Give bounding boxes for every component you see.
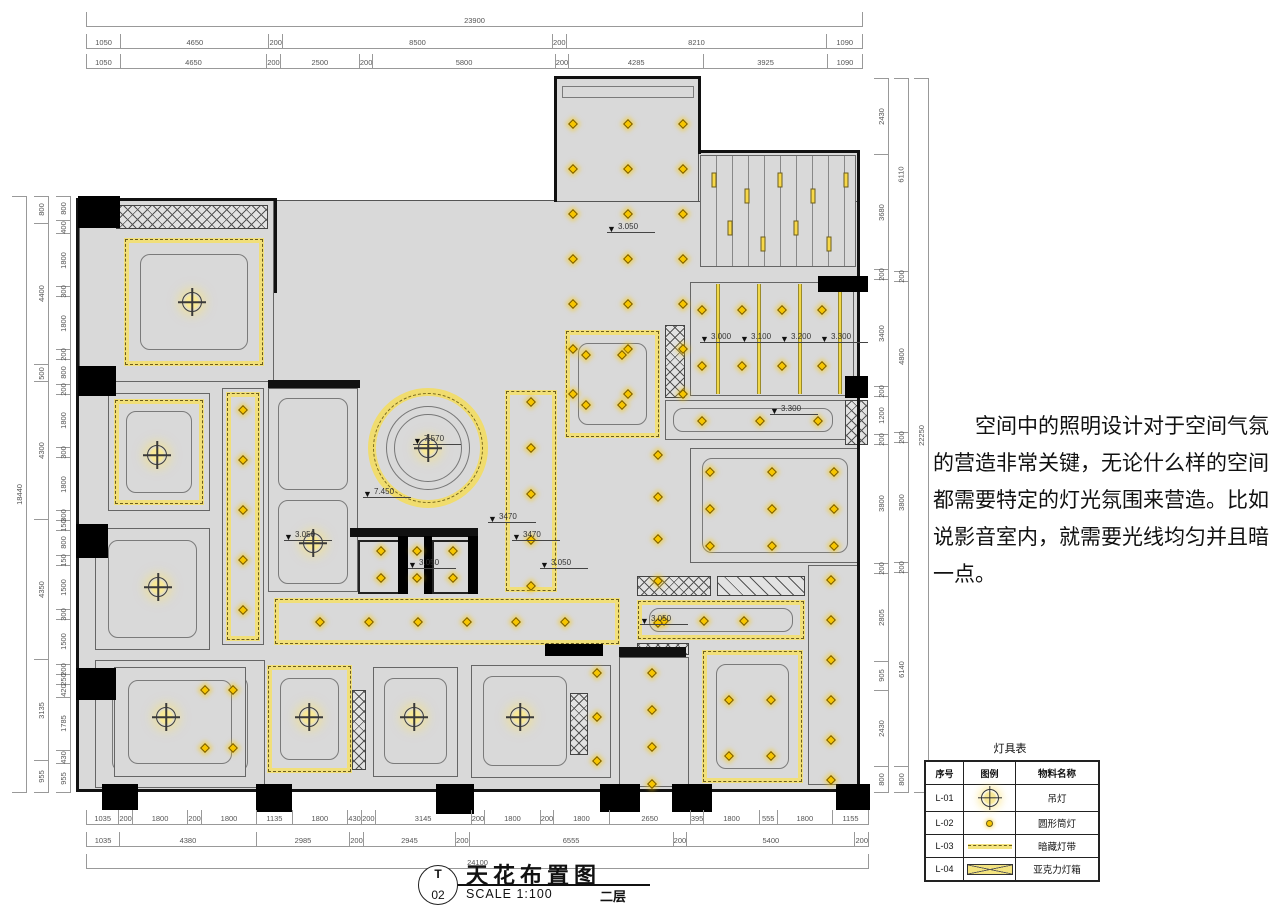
dim-segment: 4800 — [894, 282, 908, 434]
wall-segment — [268, 380, 360, 388]
dim-segment: 2650 — [610, 810, 691, 824]
dim-segment: 1035 — [87, 810, 119, 824]
column-pier — [818, 276, 868, 292]
dim-segment: 420 — [56, 685, 70, 698]
dim-label: 955 — [36, 770, 45, 783]
dim-segment: 1800 — [293, 810, 348, 824]
legend-header-symbol: 图例 — [964, 762, 1016, 784]
dim-segment: 1155 — [833, 810, 869, 824]
dim-chain-bottom-row1: 1035200180020018001135180043020031452001… — [86, 810, 869, 825]
elevation-label: 7.450 — [374, 487, 394, 496]
dim-segment: 200 — [472, 810, 486, 824]
bar-light-icon — [712, 173, 717, 188]
wall-segment — [698, 76, 701, 154]
dim-label: 6110 — [897, 167, 906, 183]
wall-segment — [556, 76, 700, 79]
dim-label: 1135 — [266, 815, 282, 823]
dim-label: 200 — [58, 349, 67, 362]
elevation-label: 3.100 — [751, 332, 771, 341]
lighting-legend: 灯具表 序号 图例 物料名称 L-01 吊灯 L-02 圆形筒灯 L-03 暗藏… — [924, 740, 1096, 882]
dim-label: 200 — [553, 39, 566, 47]
dim-label: 400 — [58, 221, 67, 234]
dim-label: 200 — [876, 269, 885, 282]
dim-label: 1785 — [59, 716, 68, 733]
legend-item-id: L-01 — [926, 785, 964, 811]
dim-label: 3135 — [37, 702, 46, 719]
dim-label: 2650 — [641, 815, 658, 823]
dim-segment: 1800 — [56, 458, 70, 511]
dim-label: 200 — [896, 431, 905, 444]
dim-label: 1800 — [796, 815, 813, 823]
dim-segment: 1800 — [778, 810, 833, 824]
dim-label: 4400 — [37, 285, 46, 302]
title-block: T 02 天花布置图 SCALE 1:100 二层 — [404, 858, 704, 902]
column-pier — [600, 784, 640, 812]
dim-segment: 2945 — [364, 832, 456, 846]
pendant-light-icon — [981, 789, 999, 807]
sheet-number: 02 — [419, 888, 457, 902]
dim-segment: 3800 — [874, 445, 888, 564]
pendant-light-icon — [147, 445, 167, 465]
dim-chain-left-total: 18440 — [12, 196, 27, 793]
dim-label: 2500 — [311, 59, 328, 67]
elevation-label: 7.570 — [424, 434, 444, 443]
dim-label: 3680 — [877, 204, 886, 221]
elevation-marker: 3.050 — [640, 614, 688, 625]
dim-label: 8210 — [688, 39, 705, 47]
dim-segment: 800 — [56, 531, 70, 555]
dim-label: 3800 — [877, 496, 886, 513]
sheet-letter: T — [419, 867, 457, 881]
dim-segment: 955 — [56, 764, 70, 793]
dim-segment: 1800 — [56, 297, 70, 350]
dim-label: 905 — [876, 670, 885, 683]
dim-label: 200 — [350, 837, 363, 845]
dim-segment: 200 — [269, 34, 283, 48]
bar-light-icon — [794, 221, 799, 236]
dim-segment: 3145 — [376, 810, 472, 824]
annotation-paragraph: 空间中的照明设计对于空间气氛的营造非常关键，无论什么样的空间都需要特定的灯光氛围… — [933, 408, 1269, 593]
dim-label: 1800 — [311, 815, 328, 823]
drawing-title: 天花布置图 — [466, 858, 601, 890]
dim-segment: 6555 — [470, 832, 674, 846]
dim-segment: 200 — [894, 433, 908, 443]
dim-segment: 3135 — [34, 660, 48, 761]
dim-label: 200 — [119, 815, 132, 823]
dim-segment: 3400 — [874, 280, 888, 386]
elevation-marker: 3470 — [488, 512, 536, 523]
dim-segment: 1200 — [874, 397, 888, 435]
dim-segment: 430 — [348, 810, 362, 824]
dim-label: 200 — [188, 815, 201, 823]
column-pier — [836, 784, 870, 810]
dim-segment: 200 — [119, 810, 133, 824]
room — [619, 657, 689, 787]
wall-segment — [76, 198, 79, 792]
dim-label: 1500 — [59, 579, 68, 596]
column-pier — [672, 784, 712, 812]
wall-segment — [619, 647, 686, 657]
dim-label: 2430 — [877, 720, 886, 737]
elevation-label: 3470 — [523, 530, 541, 539]
dim-segment: 1135 — [257, 810, 292, 824]
dim-label: 200 — [456, 837, 469, 845]
dim-segment: 200 — [855, 832, 869, 846]
elevation-label: 3.000 — [711, 332, 731, 341]
dim-label: 200 — [896, 562, 905, 575]
dim-segment: 8500 — [283, 34, 553, 48]
dim-segment: 200 — [674, 832, 688, 846]
dim-label: 1200 — [877, 407, 886, 424]
dim-label: 200 — [674, 837, 687, 845]
dim-segment: 1035 — [87, 832, 120, 846]
dim-segment: 2805 — [874, 574, 888, 662]
dim-label: 3925 — [757, 59, 774, 67]
drawing-floor: 二层 — [600, 886, 626, 905]
elevation-label: 3.300 — [831, 332, 851, 341]
dim-label: 200 — [362, 815, 375, 823]
dim-segment: 8210 — [567, 34, 828, 48]
elevation-marker: 7.570 — [413, 434, 461, 445]
dim-segment: 555 — [760, 810, 778, 824]
elevation-label: 3.050 — [618, 222, 638, 231]
dim-segment: 800 — [34, 197, 48, 224]
drawing-scale: SCALE 1:100 — [466, 887, 553, 901]
legend-title: 灯具表 — [924, 740, 1096, 756]
dim-label: 6555 — [563, 837, 580, 845]
dim-segment: 1800 — [56, 234, 70, 287]
dim-label: 200 — [541, 815, 554, 823]
dim-segment: 200 — [874, 564, 888, 574]
legend-symbol-cell — [964, 835, 1016, 857]
legend-row: L-01 吊灯 — [926, 784, 1098, 811]
downlight-icon — [986, 820, 993, 827]
dim-label: 1035 — [94, 815, 111, 823]
legend-table: 序号 图例 物料名称 L-01 吊灯 L-02 圆形筒灯 L-03 暗藏灯带 L… — [924, 760, 1100, 882]
dim-label: 150 — [58, 520, 67, 533]
dim-label: 200 — [556, 59, 569, 67]
dim-label: 200 — [269, 39, 282, 47]
wall-segment — [398, 536, 408, 594]
dim-label: 6140 — [897, 661, 906, 678]
elevation-marker: 3.300 — [820, 332, 868, 343]
dim-label: 200 — [472, 815, 485, 823]
acrylic-lightbox-strip — [665, 325, 685, 398]
column-pier — [76, 668, 116, 700]
dim-segment: 800 — [56, 360, 70, 384]
dim-segment: 1785 — [56, 698, 70, 751]
column-pier — [102, 784, 138, 810]
bar-light-icon — [745, 189, 750, 204]
dim-segment: 500 — [34, 365, 48, 382]
dim-label: 2985 — [295, 837, 312, 845]
dim-segment: 2985 — [257, 832, 350, 846]
dim-chain-right-mid: 6110200480020038002006140800 — [894, 78, 909, 793]
pendant-light-icon — [156, 707, 176, 727]
elevation-marker: 3470 — [512, 530, 560, 541]
legend-row: L-03 暗藏灯带 — [926, 834, 1098, 857]
dim-label: 4350 — [37, 582, 46, 599]
dim-label: 1800 — [723, 815, 740, 823]
dim-label: 200 — [876, 433, 885, 446]
pendant-light-icon — [148, 577, 168, 597]
dim-segment: 200 — [874, 435, 888, 445]
dim-label: 1800 — [59, 252, 68, 269]
dim-segment: 200 — [267, 54, 281, 68]
column-pier — [78, 196, 120, 228]
legend-header-name: 物料名称 — [1016, 762, 1098, 784]
dim-segment: 3680 — [874, 155, 888, 270]
elevation-marker: 3.050 — [408, 558, 456, 569]
dim-chain-right-total: 22250 — [914, 78, 929, 793]
wall-segment — [468, 536, 478, 594]
dim-label: 8500 — [409, 39, 426, 47]
bar-light-icon — [844, 173, 849, 188]
dim-label: 3145 — [415, 815, 432, 823]
dim-segment: 300 — [56, 287, 70, 297]
bar-light-icon — [761, 237, 766, 252]
dim-label: 150 — [58, 554, 67, 567]
dim-label: 2805 — [877, 609, 886, 626]
dim-chain-left-inner: 8004001800300180020080020018003001800300… — [56, 196, 71, 793]
elevation-label: 3.050 — [295, 530, 315, 539]
dim-segment: 2430 — [874, 691, 888, 767]
column-pier — [256, 784, 292, 812]
dim-label: 2945 — [401, 837, 418, 845]
legend-row: L-02 圆形筒灯 — [926, 811, 1098, 834]
sheet-number-bubble: T 02 — [418, 865, 458, 905]
dim-label: 4650 — [186, 39, 203, 47]
dim-label: 200 — [267, 59, 280, 67]
bar-light-icon — [778, 173, 783, 188]
dim-segment: 800 — [874, 767, 888, 793]
legend-header-id: 序号 — [926, 762, 964, 784]
legend-item-name: 亚克力灯箱 — [1016, 858, 1098, 880]
dim-segment: 955 — [34, 761, 48, 793]
dim-label: 3800 — [897, 494, 906, 511]
dim-label: 1050 — [95, 59, 112, 67]
dim-segment: 200 — [541, 810, 555, 824]
dim-segment: 800 — [894, 767, 908, 793]
dim-label: 1800 — [59, 476, 68, 493]
dim-segment: 1800 — [704, 810, 759, 824]
dim-label: 200 — [876, 385, 885, 398]
acrylic-lightbox-strip — [352, 690, 366, 770]
dim-label: 1090 — [836, 39, 853, 47]
dim-label: 200 — [58, 383, 67, 396]
light-strip-icon — [968, 844, 1012, 849]
pendant-light-icon — [299, 707, 319, 727]
ceiling-plan-sheet: 3.0507.5707.4503.0503.050347034703.0503.… — [0, 0, 1280, 905]
elevation-marker: 3.050 — [607, 222, 655, 233]
wall-segment — [274, 198, 277, 293]
bar-light-icon — [728, 221, 733, 236]
dim-label: 1800 — [504, 815, 521, 823]
dim-segment: 200 — [553, 34, 567, 48]
dim-segment: 200 — [362, 810, 376, 824]
dim-label: 395 — [691, 815, 704, 823]
dim-label: 1500 — [59, 634, 68, 651]
bar-light-icon — [811, 189, 816, 204]
dim-segment: 200 — [556, 54, 570, 68]
dim-label: 1035 — [95, 837, 112, 845]
dim-label: 4285 — [628, 59, 645, 67]
dim-segment: 200 — [350, 832, 364, 846]
column-pier — [76, 524, 108, 558]
dim-segment: 200 — [894, 563, 908, 573]
dim-segment: 1800 — [554, 810, 609, 824]
acrylic-lightbox-strip — [637, 576, 711, 596]
dim-label: 500 — [36, 367, 45, 380]
elevation-label: 3.300 — [781, 404, 801, 413]
legend-item-name: 暗藏灯带 — [1016, 835, 1098, 857]
dim-segment: 1800 — [133, 810, 188, 824]
dim-segment: 6140 — [894, 573, 908, 767]
dim-label: 955 — [58, 772, 67, 785]
dim-label: 2430 — [877, 108, 886, 125]
dim-label: 1090 — [837, 59, 854, 67]
dim-segment: 200 — [874, 387, 888, 397]
dim-segment: 5800 — [373, 54, 555, 68]
dim-segment: 4380 — [120, 832, 257, 846]
dim-segment: 3800 — [894, 443, 908, 563]
dim-label: 1800 — [152, 815, 169, 823]
legend-symbol-cell — [964, 785, 1016, 811]
dim-label: 800 — [58, 366, 67, 379]
light-box-icon — [967, 864, 1013, 875]
dim-segment: 4300 — [34, 382, 48, 520]
dim-segment: 4350 — [34, 520, 48, 660]
dim-label: 1800 — [573, 815, 590, 823]
dim-label: 1800 — [221, 815, 238, 823]
ceiling-band — [562, 86, 694, 98]
dim-label: 430 — [348, 815, 361, 823]
dim-segment: 1090 — [828, 54, 863, 68]
legend-item-id: L-04 — [926, 858, 964, 880]
dim-label: 4650 — [185, 59, 202, 67]
dim-segment: 430 — [56, 751, 70, 765]
dim-label: 4800 — [897, 349, 906, 366]
dim-segment: 200 — [874, 270, 888, 280]
dim-label: 4380 — [180, 837, 197, 845]
bar-light-icon — [827, 237, 832, 252]
dim-segment: 400 — [56, 221, 70, 234]
legend-symbol-cell — [964, 858, 1016, 880]
dim-label: 300 — [58, 285, 67, 298]
dim-segment: 2500 — [281, 54, 360, 68]
dim-segment: 200 — [456, 832, 470, 846]
dim-segment: 150 — [56, 521, 70, 531]
dim-label: 1800 — [59, 315, 68, 332]
dim-segment: 300 — [56, 448, 70, 458]
dim-chain-top-row3: 1050465020025002005800200428539251090 — [86, 54, 863, 69]
column-pier — [545, 644, 603, 656]
dim-label: 4300 — [37, 442, 46, 459]
elevation-marker: 3.050 — [540, 558, 588, 569]
dim-label: 5800 — [456, 59, 473, 67]
column-pier — [845, 376, 868, 398]
wall-segment — [350, 528, 478, 537]
elevation-label: 3.050 — [419, 558, 439, 567]
pendant-light-icon — [182, 292, 202, 312]
dim-segment: 1090 — [827, 34, 863, 48]
dim-segment: 23900 — [87, 12, 863, 26]
wall-segment — [554, 76, 557, 202]
dim-segment: 800 — [56, 197, 70, 221]
dim-label: 800 — [58, 202, 67, 215]
dim-segment: 2430 — [874, 79, 888, 155]
acrylic-lightbox-strip — [116, 205, 268, 229]
dim-label: 200 — [876, 562, 885, 575]
dim-label: 200 — [855, 837, 868, 845]
wall-segment — [857, 150, 860, 792]
dim-segment: 1500 — [56, 620, 70, 665]
dim-segment: 1500 — [56, 566, 70, 611]
dim-label: 200 — [360, 59, 373, 67]
dim-segment: 22250 — [914, 79, 928, 793]
dim-label: 800 — [36, 204, 45, 217]
elevation-marker: 3.050 — [284, 530, 332, 541]
elevation-label: 3.200 — [791, 332, 811, 341]
legend-item-id: L-03 — [926, 835, 964, 857]
legend-item-name: 吊灯 — [1016, 785, 1098, 811]
dim-segment: 4650 — [121, 34, 269, 48]
elevation-marker: 7.450 — [363, 487, 411, 498]
dim-segment: 1050 — [87, 54, 121, 68]
dim-segment: 200 — [56, 350, 70, 360]
dim-segment: 200 — [188, 810, 202, 824]
dim-segment: 4285 — [569, 54, 704, 68]
elevation-label: 3470 — [499, 512, 517, 521]
ceiling-recess — [278, 398, 348, 490]
dim-chain-right-inner: 2430368020034002001200200380020028059052… — [874, 78, 889, 793]
legend-symbol-cell — [964, 812, 1016, 834]
dim-segment: 3925 — [704, 54, 828, 68]
column-pier — [78, 366, 116, 396]
dim-segment: 4650 — [121, 54, 267, 68]
legend-item-name: 圆形筒灯 — [1016, 812, 1098, 834]
dim-label: 300 — [58, 608, 67, 621]
dim-segment: 1800 — [202, 810, 257, 824]
legend-header-row: 序号 图例 物料名称 — [926, 762, 1098, 784]
dim-label: 420 — [58, 685, 67, 698]
light-strip — [226, 392, 260, 641]
dim-label: 22250 — [917, 425, 926, 446]
dim-segment: 150 — [56, 556, 70, 566]
dim-chain-top-row2: 10504650200850020082101090 — [86, 34, 863, 49]
dim-label: 555 — [762, 815, 775, 823]
dim-segment: 6110 — [894, 79, 908, 272]
acrylic-lightbox-strip — [570, 693, 588, 755]
dim-label: 23900 — [464, 17, 485, 25]
dim-segment: 300 — [56, 610, 70, 620]
dim-segment: 905 — [874, 662, 888, 691]
room — [808, 565, 860, 785]
dim-chain-top-total: 23900 — [86, 12, 863, 27]
pendant-light-icon — [510, 707, 530, 727]
dim-chain-left-mid: 8004400500430043503135955 — [34, 196, 49, 793]
dim-segment: 4400 — [34, 224, 48, 366]
dim-segment: 395 — [691, 810, 705, 824]
dim-label: 300 — [58, 446, 67, 459]
dim-label: 800 — [58, 537, 67, 550]
ceiling-recess — [128, 680, 232, 764]
legend-item-id: L-02 — [926, 812, 964, 834]
hatched-strip — [717, 576, 805, 596]
dim-label: 18440 — [15, 484, 24, 505]
dim-label: 5400 — [762, 837, 779, 845]
dim-chain-bottom-row2: 103543802985200294520065552005400200 — [86, 832, 869, 847]
